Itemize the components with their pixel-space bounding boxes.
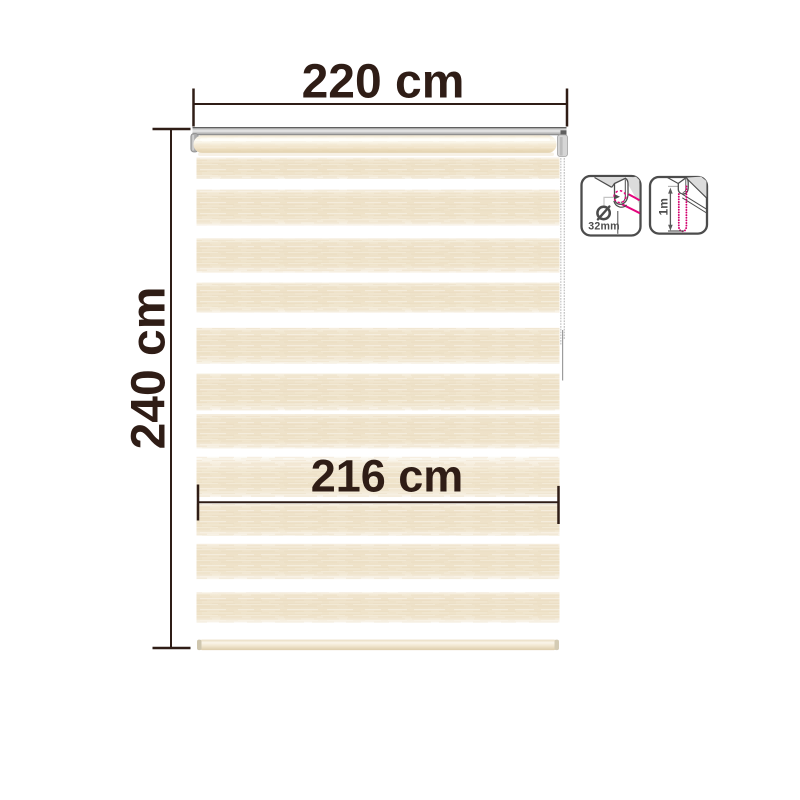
svg-text:220 cm: 220 cm (302, 56, 465, 109)
svg-text:1m: 1m (656, 198, 670, 215)
svg-text:240 cm: 240 cm (123, 287, 176, 450)
svg-text:32mm: 32mm (588, 221, 619, 233)
svg-text:216 cm: 216 cm (311, 451, 464, 502)
